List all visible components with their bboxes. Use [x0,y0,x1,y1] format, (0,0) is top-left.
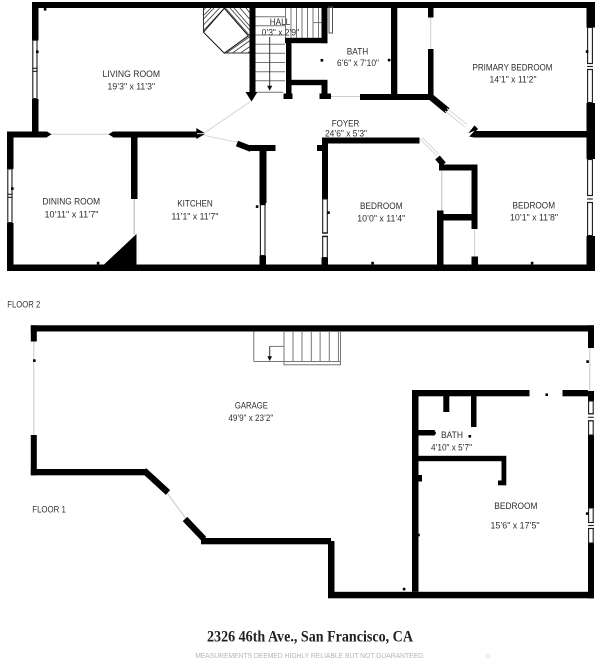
svg-text:BEDROOM: BEDROOM [513,201,556,211]
svg-text:15’6" x 17’5": 15’6" x 17’5" [491,521,540,531]
svg-text:10’11" x 11’7": 10’11" x 11’7" [45,210,99,220]
svg-text:24’6" x 5’3": 24’6" x 5’3" [325,128,367,138]
svg-text:FLOOR 1: FLOOR 1 [32,505,66,516]
svg-text:BEDROOM: BEDROOM [494,501,537,511]
svg-text:14’1" x 11’2": 14’1" x 11’2" [490,75,537,85]
svg-text:0’3" x 2’9": 0’3" x 2’9" [262,27,300,37]
svg-text:PRIMARY BEDROOM: PRIMARY BEDROOM [473,62,553,72]
svg-text:D.: D. [486,654,492,660]
svg-text:10’0" x 11’4": 10’0" x 11’4" [357,214,405,224]
svg-text:BATH: BATH [347,47,369,57]
svg-text:19’3" x 11’3": 19’3" x 11’3" [108,82,156,92]
svg-text:DINING ROOM: DINING ROOM [43,197,101,207]
svg-text:FLOOR 2: FLOOR 2 [7,299,40,310]
svg-text:4’10" x 5’7": 4’10" x 5’7" [431,443,472,453]
svg-text:6’6" x 7’10": 6’6" x 7’10" [337,58,379,68]
svg-text:2326 46th Ave., San Francisco,: 2326 46th Ave., San Francisco, CA [207,628,414,645]
svg-text:10’1" x 11’8": 10’1" x 11’8" [510,213,558,223]
svg-text:KITCHEN: KITCHEN [177,199,213,209]
svg-text:MEASUREMENTS DEEMED HIGHLY REL: MEASUREMENTS DEEMED HIGHLY RELIABLE BUT … [195,653,425,660]
svg-text:FOYER: FOYER [332,119,360,129]
svg-text:HALL: HALL [270,17,291,27]
svg-text:LIVING ROOM: LIVING ROOM [103,69,161,79]
svg-text:49’9" x 23’2": 49’9" x 23’2" [228,413,273,423]
svg-text:BATH: BATH [441,430,463,440]
svg-text:11’1" x 11’7": 11’1" x 11’7" [172,212,219,222]
svg-text:GARAGE: GARAGE [235,401,268,411]
svg-text:BEDROOM: BEDROOM [360,201,403,211]
